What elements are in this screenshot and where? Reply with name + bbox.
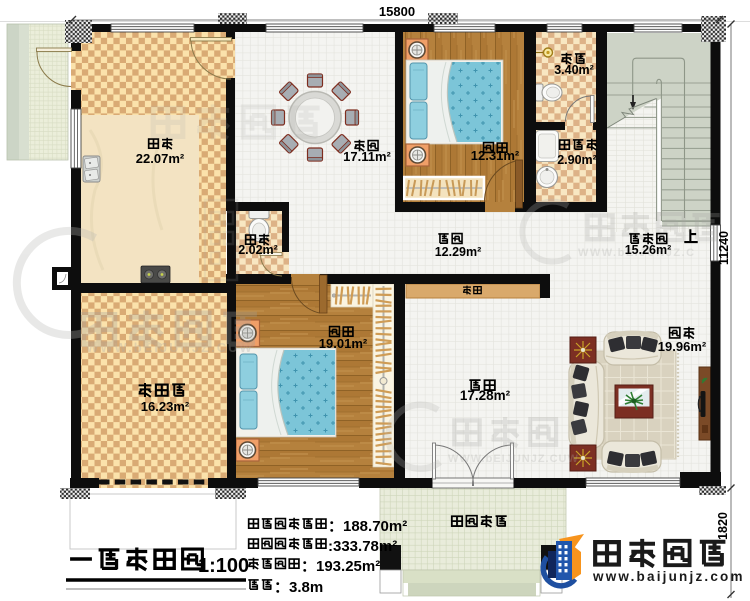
svg-text:17.28m²: 17.28m² xyxy=(460,388,511,403)
svg-text:1:100: 1:100 xyxy=(198,555,249,577)
svg-text:WWW.bEIJUNJZ.CUW: WWW.bEIJUNJZ.CUW xyxy=(86,340,254,355)
svg-text:3.40m²: 3.40m² xyxy=(554,63,594,77)
svg-text:16.23m²: 16.23m² xyxy=(141,399,190,414)
svg-text:www.baijunjz.com: www.baijunjz.com xyxy=(592,569,745,584)
svg-text:15800: 15800 xyxy=(379,4,415,19)
svg-text:12.29m²: 12.29m² xyxy=(435,245,482,259)
svg-text:1820: 1820 xyxy=(716,512,730,540)
svg-text:17.11m²: 17.11m² xyxy=(343,149,391,164)
svg-text:：3.8m: ：3.8m xyxy=(274,579,323,596)
svg-text:19.01m²: 19.01m² xyxy=(319,336,368,351)
svg-text:：193.25m²: ：193.25m² xyxy=(301,558,380,575)
svg-text:2.90m²: 2.90m² xyxy=(557,153,597,167)
svg-text:2.02m²: 2.02m² xyxy=(238,243,278,257)
svg-text:11240: 11240 xyxy=(717,231,731,265)
svg-text:19.96m²: 19.96m² xyxy=(658,339,707,354)
svg-text:22.07m²: 22.07m² xyxy=(136,151,185,166)
svg-text:：188.70m²: ：188.70m² xyxy=(328,518,407,535)
svg-text:12.31m²: 12.31m² xyxy=(471,148,520,163)
svg-text:15.26m²: 15.26m² xyxy=(625,243,672,257)
svg-text::333.78m²: :333.78m² xyxy=(328,538,397,555)
svg-text:WWW.bEIJUNJZ.CUW: WWW.bEIJUNJZ.CUW xyxy=(448,453,579,465)
